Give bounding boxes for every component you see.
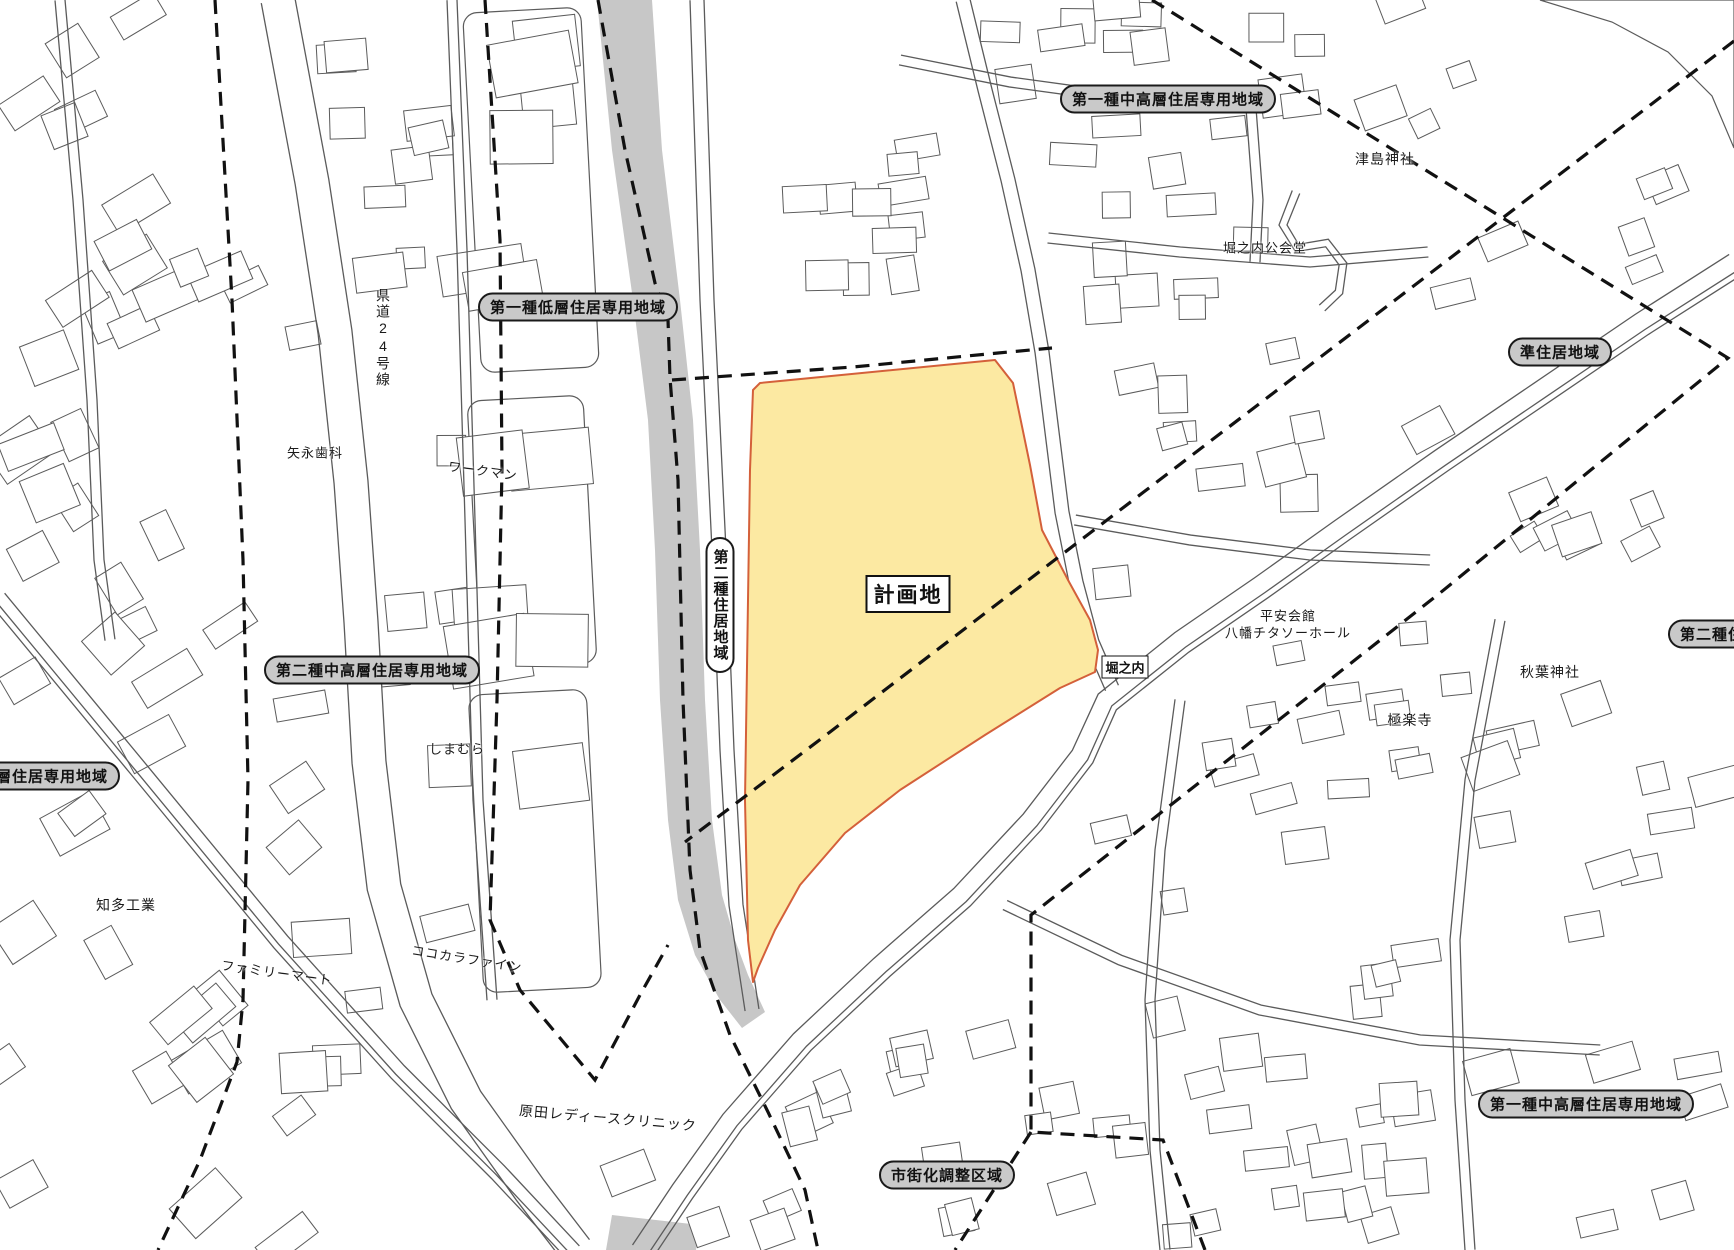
- building: [1281, 827, 1329, 865]
- street: [1145, 699, 1175, 1250]
- building: [512, 743, 589, 810]
- yanaga-dental: 矢永歯科: [287, 443, 343, 462]
- building: [1083, 284, 1121, 325]
- building: [966, 1020, 1016, 1059]
- building: [1243, 1147, 1289, 1172]
- pill-jun: 準住居地域: [1508, 338, 1612, 367]
- building: [270, 761, 325, 813]
- building: [285, 321, 321, 351]
- building: [1273, 641, 1305, 666]
- river-strip: [597, 0, 765, 1028]
- zoning-boundary-dashed: [955, 1132, 1031, 1250]
- building: [1092, 114, 1141, 138]
- planned-site-area: [745, 360, 1098, 982]
- building: [1621, 526, 1661, 562]
- map-canvas: [0, 0, 1734, 1250]
- building: [1474, 811, 1516, 848]
- building: [329, 107, 365, 139]
- building: [1038, 24, 1085, 52]
- building: [1160, 888, 1187, 915]
- building: [1271, 1185, 1299, 1209]
- building: [6, 530, 59, 581]
- pill-1chuko-br: 第一種中高層住居専用地域: [1478, 1090, 1694, 1119]
- building: [886, 255, 919, 295]
- site-label: 計画地: [866, 575, 951, 613]
- building: [1295, 34, 1325, 56]
- building: [1196, 463, 1245, 491]
- building: [1207, 1105, 1252, 1134]
- building: [1327, 778, 1369, 799]
- building: [1307, 1139, 1352, 1178]
- building: [132, 648, 203, 708]
- river-strip-south: [606, 1215, 700, 1250]
- building: [1446, 61, 1476, 89]
- building: [345, 987, 383, 1013]
- building: [1647, 807, 1694, 835]
- building: [490, 110, 553, 164]
- pill-shigaika: 市街化調整区域: [879, 1161, 1015, 1190]
- building: [1166, 193, 1216, 217]
- building: [1430, 278, 1475, 309]
- building: [1093, 565, 1131, 600]
- building: [980, 21, 1020, 43]
- pill-cut-right: 第二種住: [1668, 620, 1734, 649]
- building: [45, 23, 99, 78]
- building: [203, 602, 258, 649]
- street: [1003, 910, 1600, 1055]
- pill-1chuko-top: 第一種中高層住居専用地域: [1060, 85, 1276, 114]
- route-24: 県道24号線: [373, 288, 393, 388]
- street: [1155, 701, 1185, 1250]
- akiba-shrine: 秋葉神社: [1520, 662, 1580, 682]
- pill-2chuko: 第二種中高層住居専用地域: [264, 656, 480, 685]
- building: [1379, 1081, 1419, 1117]
- building: [1115, 273, 1159, 308]
- building: [1303, 1189, 1345, 1221]
- building: [1092, 0, 1140, 21]
- building: [324, 38, 368, 73]
- forest-outline: [1540, 0, 1734, 148]
- building: [273, 690, 329, 722]
- building: [1202, 738, 1236, 770]
- building: [1564, 911, 1604, 943]
- building: [1625, 255, 1663, 285]
- building: [1585, 1041, 1640, 1083]
- building: [385, 592, 427, 631]
- building: [1354, 85, 1407, 131]
- building: [1399, 621, 1428, 646]
- building: [266, 820, 322, 875]
- building: [1636, 761, 1669, 795]
- building: [1674, 1051, 1722, 1079]
- building: [1290, 411, 1324, 445]
- building: [516, 614, 589, 668]
- building: [1250, 783, 1297, 815]
- building: [852, 189, 891, 217]
- building: [1114, 363, 1158, 395]
- zoning-map: 第一種中高層住居専用地域第一種低層住居専用地域準住居地域第二種中高層住居専用地域…: [0, 0, 1734, 1250]
- planned-site-layer: [745, 360, 1098, 982]
- street: [1450, 619, 1495, 1250]
- building: [1478, 221, 1528, 262]
- tsushima-shrine: 津島神社: [1355, 149, 1415, 169]
- building: [1374, 0, 1425, 24]
- building: [0, 900, 56, 964]
- street: [1074, 525, 1430, 565]
- yawata-hall: 八幡チタソーホール: [1225, 623, 1351, 642]
- building: [0, 657, 51, 705]
- building: [1247, 701, 1279, 727]
- city-block-outline: [468, 689, 601, 993]
- building: [1280, 90, 1321, 119]
- building: [1179, 295, 1206, 319]
- building: [1185, 1066, 1225, 1099]
- shimamura: しまむら: [429, 739, 485, 758]
- building: [1618, 218, 1654, 256]
- building: [291, 918, 352, 957]
- pill-1teiso: 第一種低層住居専用地域: [478, 293, 678, 322]
- building: [896, 1044, 928, 1078]
- pill-cut-left: 層住居専用地域: [0, 762, 120, 791]
- building: [1384, 1158, 1429, 1196]
- building: [0, 1160, 48, 1209]
- building: [1651, 1180, 1694, 1219]
- building: [364, 185, 406, 208]
- building: [1440, 672, 1471, 696]
- building: [1102, 192, 1130, 218]
- building: [872, 227, 916, 253]
- building: [169, 1168, 242, 1239]
- building: [1325, 682, 1361, 706]
- building: [0, 1043, 25, 1088]
- building: [1561, 680, 1612, 726]
- building: [1401, 406, 1454, 455]
- building: [1264, 1054, 1307, 1082]
- building: [805, 260, 848, 291]
- building: [1092, 241, 1127, 277]
- pill-2jukyo-v: 第二種住居地域: [706, 537, 735, 673]
- building: [600, 1149, 655, 1197]
- horinouchi-label: 堀之内: [1101, 656, 1148, 679]
- building: [1158, 375, 1188, 413]
- building: [887, 152, 919, 176]
- building: [1162, 1223, 1191, 1249]
- building: [1157, 422, 1188, 451]
- building: [279, 1051, 328, 1094]
- building: [95, 562, 144, 615]
- building: [1219, 1033, 1262, 1071]
- building: [1249, 13, 1284, 42]
- building: [1130, 28, 1169, 65]
- gokurakuji: 極楽寺: [1388, 710, 1433, 730]
- building: [1630, 491, 1664, 527]
- building: [1266, 337, 1300, 364]
- building: [420, 904, 475, 943]
- building: [1408, 108, 1439, 138]
- building: [255, 1212, 318, 1250]
- building: [1688, 765, 1734, 808]
- building: [1297, 710, 1344, 743]
- building: [110, 0, 166, 40]
- building: [1210, 115, 1247, 139]
- building: [995, 64, 1036, 104]
- building: [1047, 1172, 1095, 1215]
- building: [1145, 996, 1185, 1038]
- building: [272, 1095, 315, 1136]
- building: [352, 252, 407, 293]
- chita-kogyo: 知多工業: [96, 895, 156, 915]
- building: [1148, 152, 1185, 189]
- building: [140, 510, 184, 561]
- building: [782, 184, 827, 212]
- building: [1049, 142, 1097, 167]
- building: [1576, 1209, 1618, 1238]
- building: [84, 925, 133, 979]
- horinouchi-hall: 堀之内公会堂: [1223, 238, 1307, 257]
- street: [1460, 621, 1505, 1250]
- building: [19, 330, 78, 387]
- building: [1391, 939, 1441, 968]
- building: [117, 715, 185, 774]
